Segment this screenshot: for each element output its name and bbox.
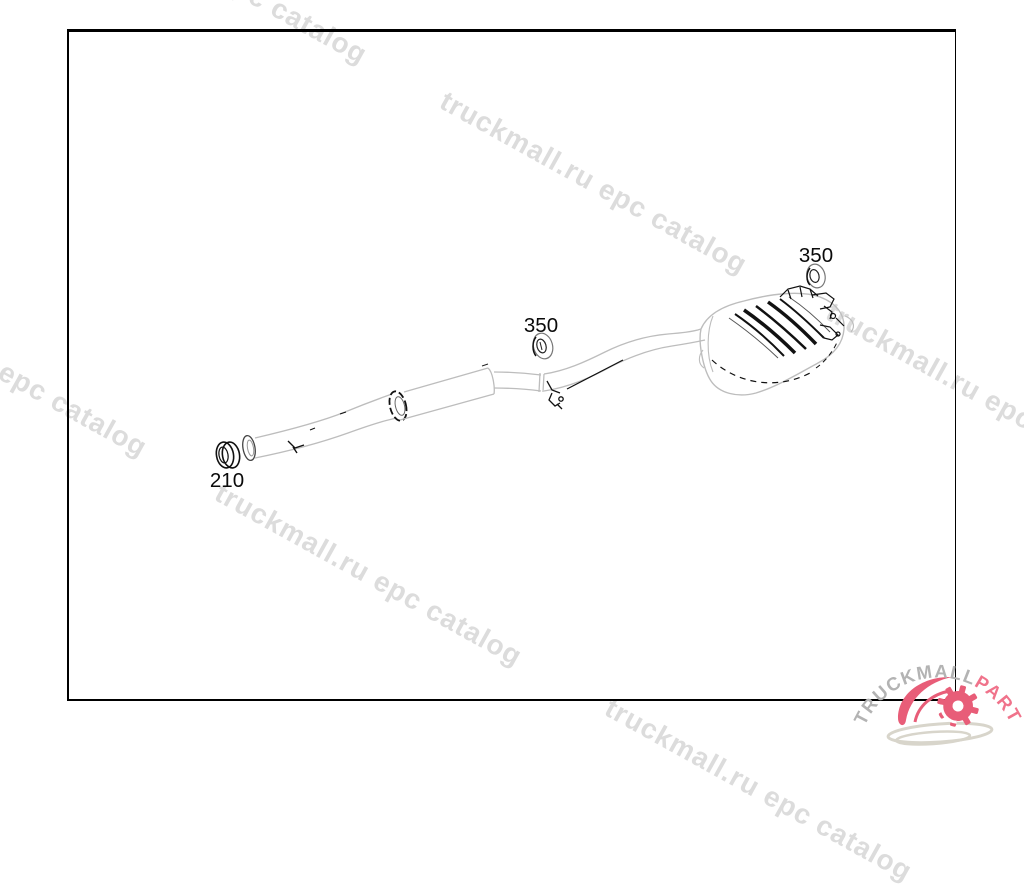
exhaust-system-diagram: 210 (0, 0, 1024, 750)
center-resonator (387, 364, 495, 422)
mid-pipe (494, 329, 705, 392)
logo-text-parts: PARTS (0, 0, 1024, 726)
muffler-seam-dashed (712, 360, 812, 383)
clamp-part-210 (214, 441, 241, 470)
truckmall-parts-logo: TRUCKMALLPARTS (0, 0, 1024, 747)
logo-arc-text: TRUCKMALLPARTS (0, 0, 1024, 728)
front-pipe-bracket (288, 412, 346, 453)
front-pipe (255, 394, 397, 458)
part-label-210: 210 (210, 469, 244, 492)
leader-line-350-mid (567, 360, 623, 389)
part-label-350-mid: 350 (524, 314, 558, 337)
rear-muffler (699, 286, 853, 395)
pipe-hanger-bracket (547, 381, 563, 409)
part-label-350-right: 350 (799, 244, 833, 267)
muffler-heat-shield-bands (729, 297, 830, 358)
front-pipe-flange (241, 435, 257, 462)
